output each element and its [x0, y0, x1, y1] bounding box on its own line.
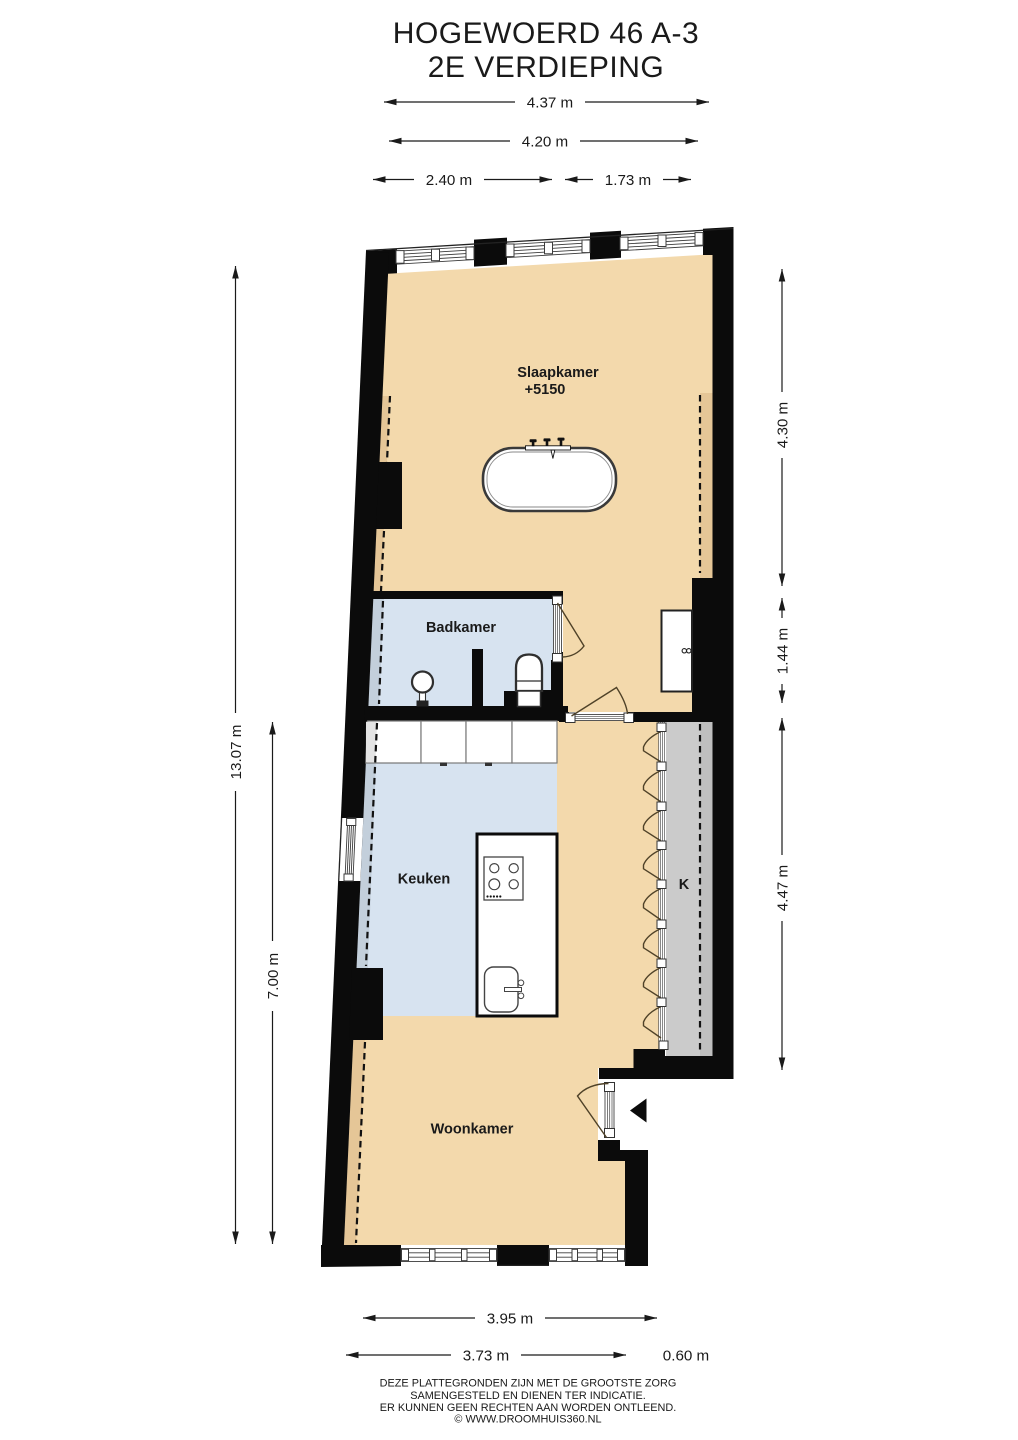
svg-text:+5150: +5150	[525, 382, 566, 398]
svg-text:Woonkamer: Woonkamer	[431, 1122, 514, 1138]
svg-text:HOGEWOERD 46 A-3: HOGEWOERD 46 A-3	[393, 17, 699, 50]
svg-text:ER KUNNEN GEEN RECHTEN AAN WOR: ER KUNNEN GEEN RECHTEN AAN WORDEN ONTLEE…	[380, 1402, 677, 1414]
svg-text:3.95 m: 3.95 m	[487, 1311, 533, 1328]
svg-text:13.07 m: 13.07 m	[228, 725, 245, 780]
svg-text:1.73 m: 1.73 m	[605, 172, 651, 189]
svg-text:2.40 m: 2.40 m	[426, 172, 472, 189]
svg-text:K: K	[679, 877, 690, 893]
svg-text:3.73 m: 3.73 m	[463, 1348, 509, 1365]
svg-text:4.47 m: 4.47 m	[775, 865, 792, 911]
svg-text:Slaapkamer: Slaapkamer	[517, 365, 599, 381]
svg-text:Badkamer: Badkamer	[426, 620, 496, 636]
svg-text:0.60 m: 0.60 m	[663, 1348, 709, 1365]
svg-text:4.30 m: 4.30 m	[775, 402, 792, 448]
svg-text:Keuken: Keuken	[398, 872, 450, 888]
svg-text:SAMENGESTELD EN DIENEN TER IND: SAMENGESTELD EN DIENEN TER INDICATIE.	[410, 1390, 646, 1402]
svg-text:© WWW.DROOMHUIS360.NL: © WWW.DROOMHUIS360.NL	[454, 1414, 601, 1426]
svg-text:2E VERDIEPING: 2E VERDIEPING	[428, 51, 665, 84]
svg-text:7.00 m: 7.00 m	[265, 953, 282, 999]
svg-text:1.44 m: 1.44 m	[775, 628, 792, 674]
svg-text:4.37 m: 4.37 m	[527, 95, 573, 112]
svg-text:4.20 m: 4.20 m	[522, 134, 568, 151]
svg-text:DEZE PLATTEGRONDEN ZIJN MET DE: DEZE PLATTEGRONDEN ZIJN MET DE GROOTSTE …	[380, 1378, 677, 1390]
